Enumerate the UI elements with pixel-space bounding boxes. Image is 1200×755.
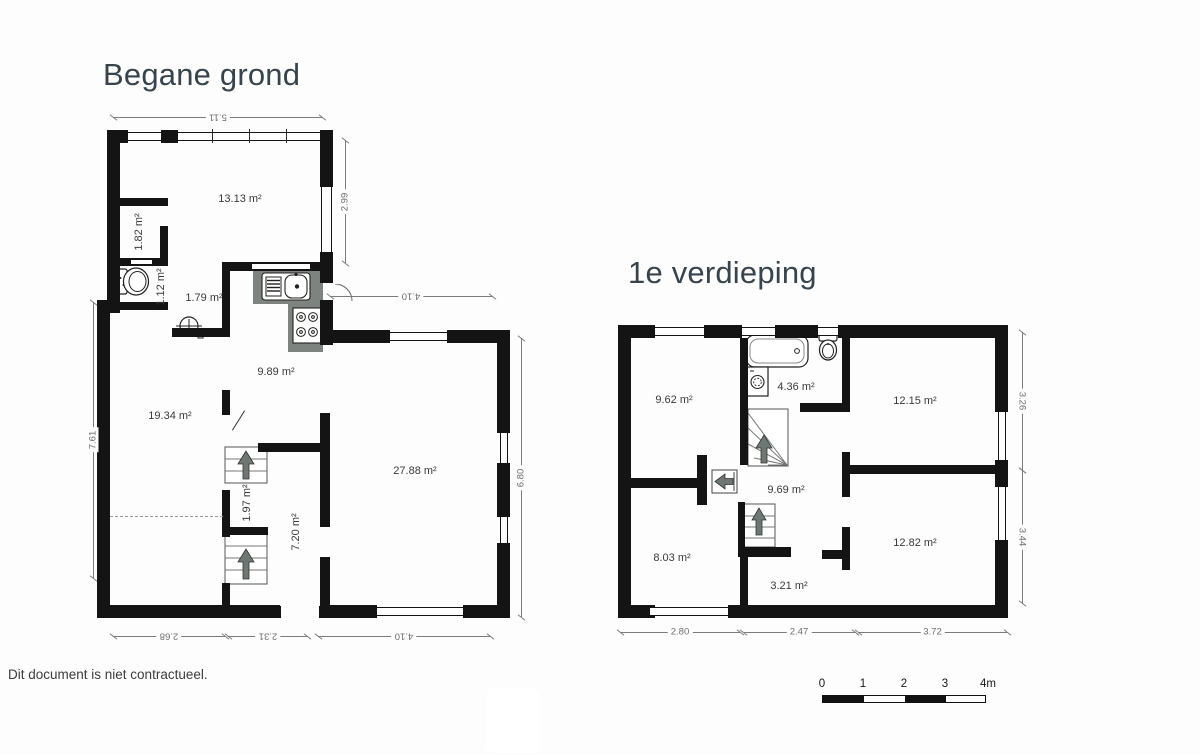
dimension-label: 2.99 bbox=[340, 189, 351, 214]
wall bbox=[842, 332, 850, 412]
wall bbox=[847, 465, 1000, 474]
dimension-label: 4.10 bbox=[399, 291, 424, 302]
dimension-label: 3.44 bbox=[1017, 524, 1028, 549]
window bbox=[742, 327, 775, 336]
window bbox=[390, 332, 447, 341]
wall bbox=[97, 300, 110, 618]
wall bbox=[320, 130, 333, 187]
wall bbox=[280, 606, 281, 618]
window bbox=[500, 517, 508, 543]
room-label: 12.15 m² bbox=[893, 395, 936, 407]
wall bbox=[728, 605, 1008, 618]
door-swing-icon bbox=[334, 284, 353, 303]
wall bbox=[738, 502, 745, 547]
dimension-label: 2.31 bbox=[255, 631, 280, 642]
bathtub-icon bbox=[745, 334, 811, 370]
dimension-label: 2.47 bbox=[787, 627, 812, 638]
room-label: 13.13 m² bbox=[218, 193, 261, 205]
dimension-label: 3.72 bbox=[920, 627, 945, 638]
wall bbox=[497, 330, 510, 433]
dimension-label: 3.26 bbox=[1017, 389, 1028, 414]
wall bbox=[222, 390, 230, 415]
staircase-up-icon bbox=[224, 533, 270, 587]
window bbox=[818, 327, 838, 336]
window bbox=[321, 187, 332, 252]
room-label: 1.97 m² bbox=[241, 484, 253, 521]
dimension-label: 4.10 bbox=[392, 631, 417, 642]
wall bbox=[631, 478, 697, 488]
wall bbox=[107, 130, 120, 313]
wall bbox=[497, 463, 510, 517]
wall bbox=[320, 605, 377, 618]
scale-label: 2 bbox=[901, 678, 907, 690]
wall bbox=[838, 325, 1008, 338]
wall bbox=[319, 606, 320, 618]
scale-bar: 0 1 2 3 4m bbox=[818, 678, 994, 708]
wall bbox=[497, 543, 510, 618]
scale-label: 4m bbox=[980, 678, 996, 690]
dimension-label: 2.80 bbox=[668, 627, 693, 638]
window-mullion bbox=[249, 129, 250, 143]
staircase-up-icon bbox=[742, 502, 778, 550]
wall bbox=[822, 550, 842, 559]
watermark-logo bbox=[486, 688, 540, 754]
room-label: 1.12 m² bbox=[155, 268, 167, 305]
wall bbox=[258, 443, 324, 452]
room-label: 4.36 m² bbox=[777, 381, 814, 393]
wall bbox=[995, 325, 1008, 412]
room-label: 9.69 m² bbox=[767, 484, 804, 496]
room-label: 7.20 m² bbox=[290, 513, 302, 550]
floor-plan-document: Begane grond 1e verdieping bbox=[0, 0, 1200, 755]
wall bbox=[618, 325, 631, 618]
wall bbox=[842, 527, 850, 570]
window bbox=[650, 607, 728, 616]
room-label: 8.03 m² bbox=[653, 552, 690, 564]
wall bbox=[995, 540, 1008, 618]
room-label: 1.79 m² bbox=[185, 292, 222, 304]
niche-dashed-line bbox=[110, 516, 223, 517]
wall bbox=[740, 557, 748, 605]
dimension-label: 5.11 bbox=[206, 112, 230, 123]
dimension-label: 7.61 bbox=[88, 428, 99, 453]
washing-machine-icon bbox=[746, 366, 770, 398]
dimension-label: 2.68 bbox=[157, 631, 182, 642]
room-label: 1.82 m² bbox=[133, 213, 145, 250]
wall bbox=[697, 455, 707, 505]
room-label: 3.21 m² bbox=[770, 580, 807, 592]
room-label: 19.34 m² bbox=[148, 410, 191, 422]
entry-arrow-icon bbox=[710, 468, 740, 495]
scale-label: 3 bbox=[942, 678, 948, 690]
wall bbox=[842, 452, 850, 497]
wall bbox=[172, 328, 230, 337]
room-label: 27.88 m² bbox=[393, 465, 436, 477]
wall bbox=[800, 403, 842, 412]
disclaimer-text: Dit document is niet contractueel. bbox=[8, 667, 208, 682]
wall bbox=[738, 547, 791, 557]
wall bbox=[320, 557, 330, 605]
winder-staircase-icon bbox=[746, 408, 790, 468]
ground-floor-title: Begane grond bbox=[103, 57, 300, 93]
door-leaf-icon bbox=[232, 410, 245, 430]
wall bbox=[740, 338, 748, 410]
window bbox=[655, 327, 704, 336]
wall bbox=[775, 325, 818, 338]
first-floor-title: 1e verdieping bbox=[628, 255, 817, 291]
scale-bar-ruler bbox=[822, 695, 986, 703]
window bbox=[252, 263, 310, 270]
wall bbox=[160, 226, 168, 262]
staircase-up-icon bbox=[224, 446, 270, 486]
window bbox=[131, 259, 152, 265]
window bbox=[998, 412, 1006, 460]
wall bbox=[320, 300, 333, 345]
scale-label: 0 bbox=[819, 678, 825, 690]
wall bbox=[740, 410, 748, 465]
window bbox=[500, 433, 508, 463]
window-mullion bbox=[286, 129, 287, 143]
wall bbox=[228, 527, 268, 535]
window bbox=[998, 487, 1006, 540]
dimension-label: 6.80 bbox=[516, 465, 527, 490]
wall bbox=[320, 413, 330, 527]
window bbox=[377, 607, 463, 616]
window-mullion bbox=[212, 129, 213, 143]
window bbox=[128, 132, 161, 141]
wall bbox=[704, 325, 742, 338]
wall bbox=[333, 330, 390, 343]
wall bbox=[161, 130, 178, 143]
scale-label: 1 bbox=[860, 678, 866, 690]
room-label: 9.89 m² bbox=[257, 366, 294, 378]
wall bbox=[222, 583, 230, 605]
room-label: 9.62 m² bbox=[655, 394, 692, 406]
room-label: 12.82 m² bbox=[893, 537, 936, 549]
wall bbox=[97, 605, 280, 618]
wall bbox=[120, 198, 168, 206]
